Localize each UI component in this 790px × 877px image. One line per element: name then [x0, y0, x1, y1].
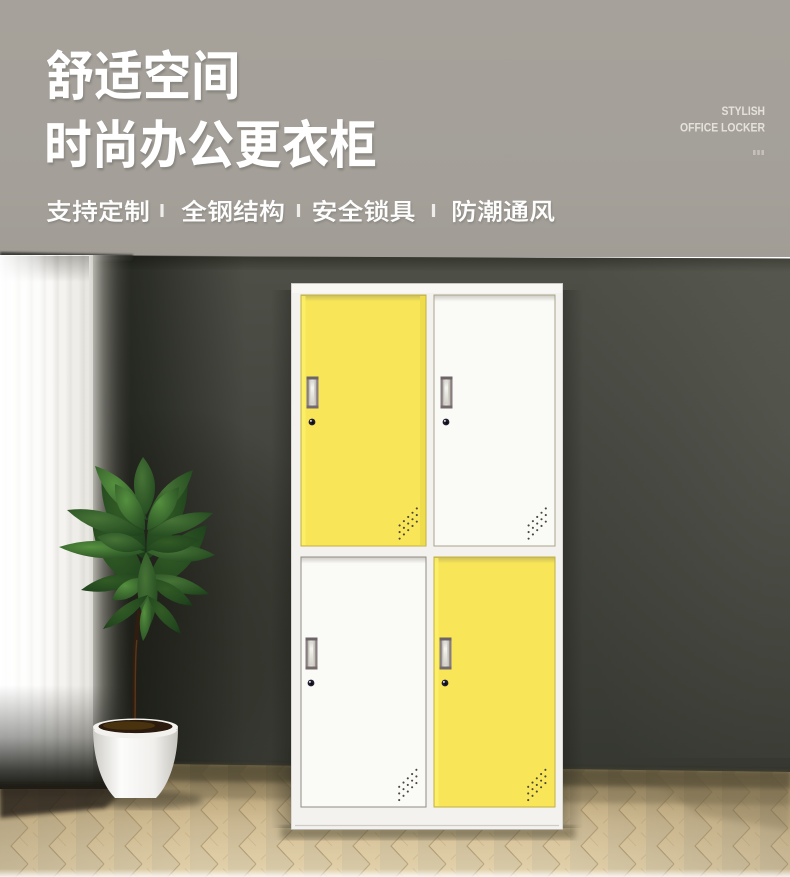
- svg-text:OFFICE LOCKER: OFFICE LOCKER: [680, 121, 765, 135]
- svg-text:STYLISH: STYLISH: [722, 104, 766, 118]
